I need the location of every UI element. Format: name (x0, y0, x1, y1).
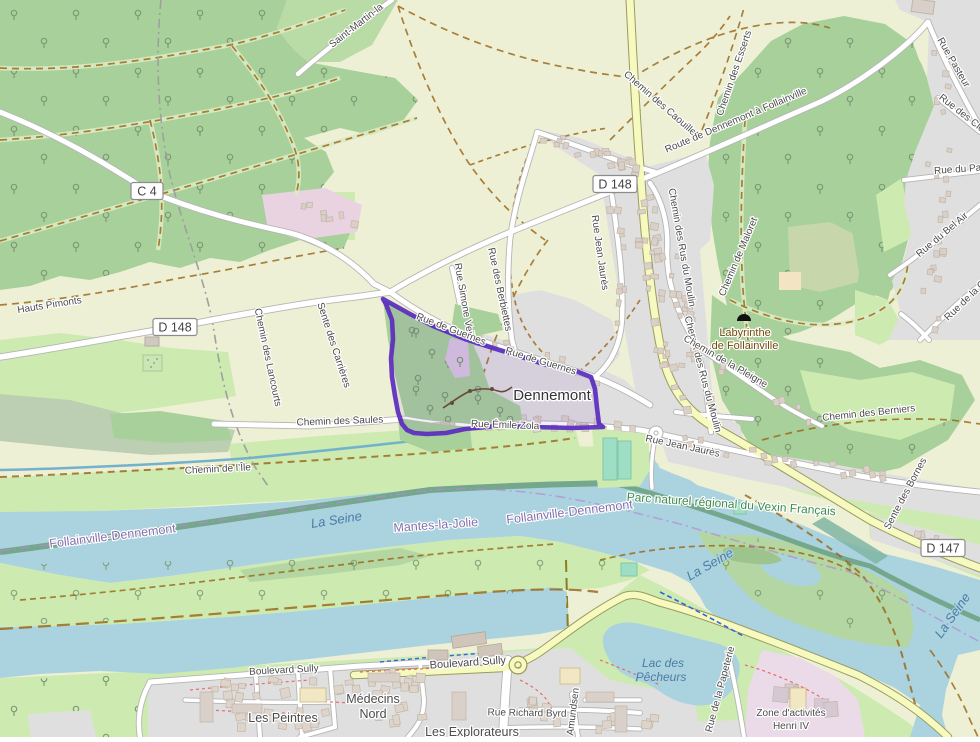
svg-text:de Follainville: de Follainville (712, 340, 779, 352)
svg-text:Henri IV: Henri IV (773, 721, 809, 732)
svg-text:Labyrinthe: Labyrinthe (719, 327, 770, 339)
svg-text:Rue Richard Byrd: Rue Richard Byrd (487, 707, 566, 719)
svg-text:Lac des: Lac des (642, 656, 684, 670)
svg-text:Les Explorateurs: Les Explorateurs (425, 725, 519, 737)
svg-text:Dennemont: Dennemont (513, 387, 591, 404)
svg-text:Médecins: Médecins (346, 692, 400, 706)
svg-text:C 4: C 4 (137, 185, 157, 199)
svg-text:D 147: D 147 (926, 542, 959, 556)
svg-text:Zone d'activités: Zone d'activités (756, 708, 825, 719)
svg-text:D 148: D 148 (158, 321, 191, 335)
svg-text:D 148: D 148 (598, 178, 631, 192)
svg-text:Les Peintres: Les Peintres (248, 711, 317, 725)
svg-text:Pêcheurs: Pêcheurs (636, 670, 687, 684)
svg-text:Nord: Nord (359, 707, 386, 721)
